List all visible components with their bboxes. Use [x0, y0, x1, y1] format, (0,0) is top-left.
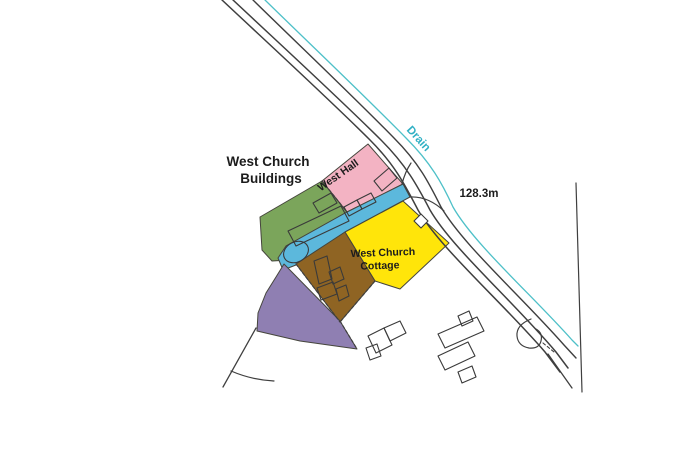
- boundary-right-edge: [576, 183, 582, 392]
- label-drain: Drain: [404, 124, 433, 154]
- building-south-b1: [438, 317, 484, 348]
- label-west-church-buildings-line2: Buildings: [240, 171, 302, 186]
- site-plan-svg: West ChurchBuildingsWest HallWest Church…: [0, 0, 700, 467]
- boundary-southwest-curve: [231, 371, 274, 381]
- building-south-b4: [458, 366, 476, 383]
- site-plan-page: West ChurchBuildingsWest HallWest Church…: [0, 0, 700, 467]
- label-west-church-buildings-line1: West Church: [226, 154, 309, 169]
- building-south-a1: [368, 328, 392, 353]
- label-distance-128-3m: 128.3m: [459, 188, 498, 200]
- label-west-church-cottage-line1: West Church: [350, 246, 415, 260]
- label-west-church-cottage-line2: Cottage: [360, 259, 400, 272]
- road-fork-end: [548, 354, 572, 388]
- building-south-a2: [384, 321, 406, 341]
